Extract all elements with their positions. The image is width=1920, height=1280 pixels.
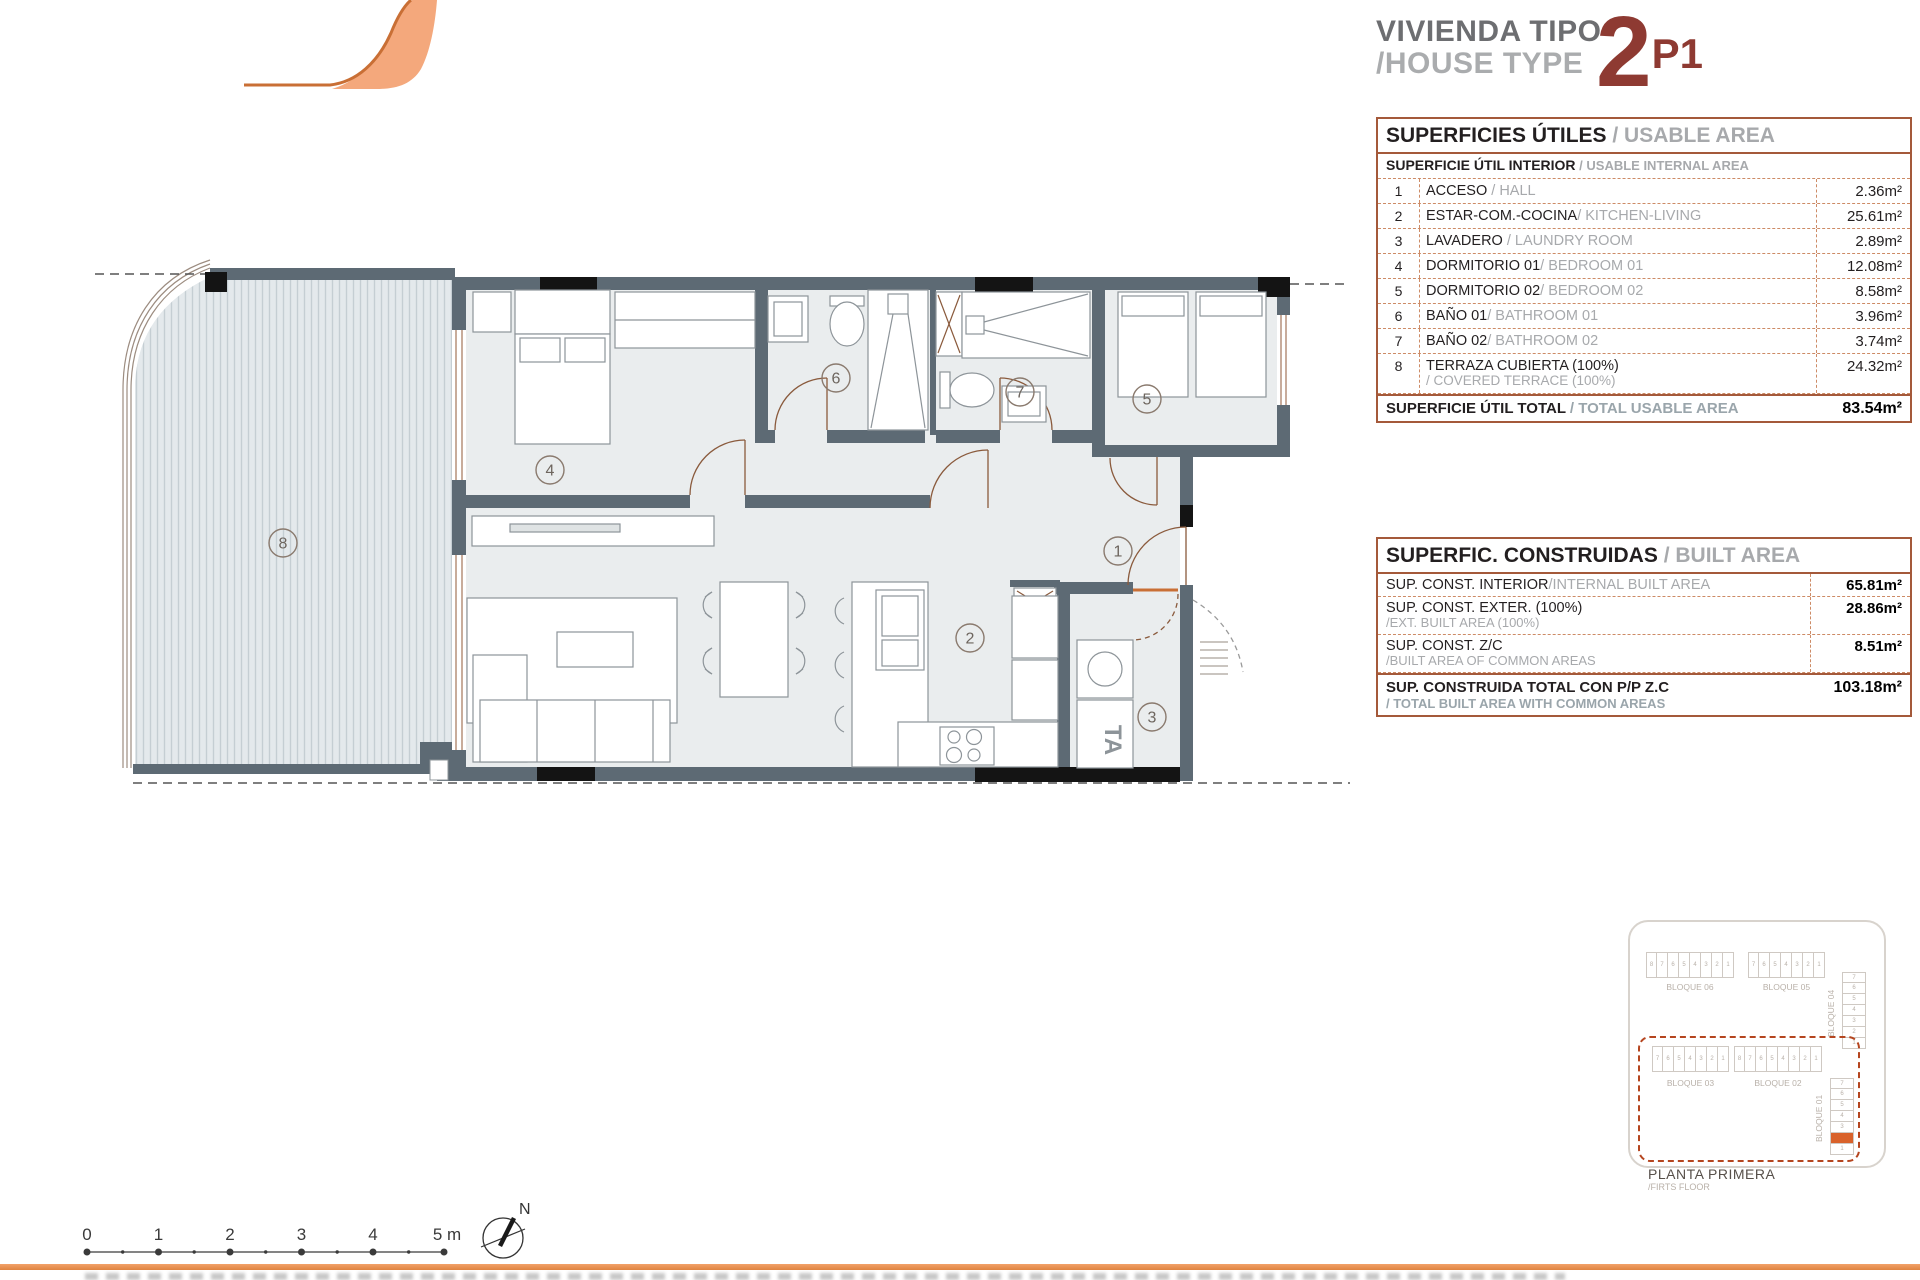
- svg-text:8: 8: [279, 536, 288, 553]
- unit-cell: 5: [1830, 1100, 1854, 1111]
- type-number: 2: [1596, 0, 1652, 108]
- bloque-05-cells: 7654321: [1748, 952, 1825, 978]
- unit-cell: 3: [1830, 1122, 1854, 1133]
- svg-text:5: 5: [1143, 392, 1152, 409]
- unit-cell: 6: [1759, 952, 1770, 978]
- built-area-table: SUPERFIC. CONSTRUIDAS / BUILT AREA SUP. …: [1376, 537, 1912, 717]
- unit-cell: 5: [1679, 952, 1690, 978]
- unit-cell: 3: [1792, 952, 1803, 978]
- usable-area-table: SUPERFICIES ÚTILES / USABLE AREA SUPERFI…: [1376, 117, 1912, 423]
- unit-cell: 6: [1842, 983, 1866, 994]
- bloque-01-label: BLOQUE 01: [1814, 1080, 1824, 1157]
- usable-table-title: SUPERFICIES ÚTILES / USABLE AREA: [1378, 119, 1910, 154]
- table-row: 5 DORMITORIO 02/ BEDROOM 02 8.58m²: [1378, 279, 1910, 304]
- unit-cell: 7: [1748, 952, 1759, 978]
- svg-text:0: 0: [82, 1225, 91, 1244]
- unit-cell: 1: [1718, 1046, 1729, 1072]
- unit-cell: 4: [1781, 952, 1792, 978]
- unit-cell: 6: [1756, 1046, 1767, 1072]
- terrace-decking-hatch: [135, 277, 455, 770]
- unit-cell: 5: [1770, 952, 1781, 978]
- bloque-03-label: BLOQUE 03: [1652, 1078, 1729, 1088]
- table-row: SUP. CONST. Z/C/BUILT AREA OF COMMON ARE…: [1378, 635, 1910, 673]
- unit-cell: 7: [1657, 952, 1668, 978]
- table-row: 1 ACCESO / HALL 2.36m²: [1378, 179, 1910, 204]
- usable-total-row: SUPERFICIE ÚTIL TOTAL / TOTAL USABLE ARE…: [1378, 394, 1910, 421]
- unit-cell: 8: [1734, 1046, 1745, 1072]
- bloque-06-label: BLOQUE 06: [1646, 982, 1734, 992]
- table-row: SUP. CONST. INTERIOR/INTERNAL BUILT AREA…: [1378, 574, 1910, 597]
- svg-text:4: 4: [368, 1225, 377, 1244]
- scale-bar: 0 1 2 3 4 5 m: [82, 1225, 461, 1256]
- svg-text:5 m: 5 m: [433, 1225, 461, 1244]
- table-row: 6 BAÑO 01/ BATHROOM 01 3.96m²: [1378, 304, 1910, 329]
- svg-text:7: 7: [1016, 385, 1025, 402]
- brand-logo-icon: [244, 0, 437, 89]
- unit-cell: 6: [1830, 1089, 1854, 1100]
- unit-cell: 3: [1701, 952, 1712, 978]
- table-row: 2 ESTAR-COM.-COCINA/ KITCHEN-LIVING 25.6…: [1378, 204, 1910, 229]
- svg-text:2: 2: [966, 631, 975, 648]
- unit-cell: 4: [1830, 1111, 1854, 1122]
- built-table-title: SUPERFIC. CONSTRUIDAS / BUILT AREA: [1378, 539, 1910, 574]
- built-total-row: SUP. CONSTRUIDA TOTAL CON P/P Z.C/ TOTAL…: [1378, 673, 1910, 715]
- unit-cell: 1: [1814, 952, 1825, 978]
- unit-cell: 4: [1690, 952, 1701, 978]
- unit-cell: 5: [1842, 994, 1866, 1005]
- unit-cell: 2: [1712, 952, 1723, 978]
- unit-cell: 1: [1830, 1144, 1854, 1155]
- svg-text:3: 3: [297, 1225, 306, 1244]
- svg-text:3: 3: [1148, 710, 1157, 727]
- unit-cell: 1: [1811, 1046, 1822, 1072]
- unit-cell: 8: [1646, 952, 1657, 978]
- unit-cell: 2: [1707, 1046, 1718, 1072]
- svg-text:6: 6: [832, 371, 841, 388]
- floor-label-es: PLANTA PRIMERA: [1648, 1166, 1775, 1182]
- unit-cell: 4: [1842, 1005, 1866, 1016]
- table-row: SUP. CONST. EXTER. (100%)/EXT. BUILT ARE…: [1378, 597, 1910, 635]
- bloque-06-cells: 87654321: [1646, 952, 1734, 978]
- unit-cell: 2: [1830, 1133, 1854, 1144]
- table-row: 3 LAVADERO / LAUNDRY ROOM 2.89m²: [1378, 229, 1910, 254]
- table-row: 4 DORMITORIO 01/ BEDROOM 01 12.08m²: [1378, 254, 1910, 279]
- unit-cell: 3: [1842, 1016, 1866, 1027]
- unit-cell: 7: [1745, 1046, 1756, 1072]
- unit-cell: 2: [1800, 1046, 1811, 1072]
- svg-text:1: 1: [154, 1225, 163, 1244]
- unit-cell: 5: [1767, 1046, 1778, 1072]
- unit-cell: 7: [1652, 1046, 1663, 1072]
- type-variant: P1: [1652, 30, 1703, 77]
- footer-accent-rule: [0, 1264, 1920, 1270]
- north-label: N: [519, 1201, 531, 1218]
- page: TA 1 2 3 4 5 6 7 8 0: [0, 0, 1920, 1280]
- table-row: 8 TERRAZA CUBIERTA (100%)/ COVERED TERRA…: [1378, 354, 1910, 394]
- north-arrow-icon: N: [481, 1201, 531, 1258]
- unit-cell: 7: [1830, 1078, 1854, 1089]
- unit-cell: 6: [1668, 952, 1679, 978]
- svg-text:1: 1: [1114, 544, 1123, 561]
- unit-cell: 2: [1803, 952, 1814, 978]
- svg-text:4: 4: [546, 463, 555, 480]
- bloque-02-label: BLOQUE 02: [1734, 1078, 1822, 1088]
- unit-cell: 7: [1842, 972, 1866, 983]
- laundry-ta-label: TA: [1099, 725, 1126, 755]
- unit-cell: 4: [1685, 1046, 1696, 1072]
- floor-label-en: /FIRTS FLOOR: [1648, 1182, 1775, 1192]
- house-type-number: 2P1: [1596, 2, 1836, 102]
- bloque-02-cells: 87654321: [1734, 1046, 1822, 1072]
- unit-cell: 6: [1663, 1046, 1674, 1072]
- bloque-03-cells: 7654321: [1652, 1046, 1729, 1072]
- table-row: 7 BAÑO 02/ BATHROOM 02 3.74m²: [1378, 329, 1910, 354]
- footer-fine-print: [85, 1273, 1565, 1280]
- unit-cell: 3: [1789, 1046, 1800, 1072]
- stairs-common-area: [1200, 642, 1228, 674]
- unit-cell: 3: [1696, 1046, 1707, 1072]
- floor-label: PLANTA PRIMERA /FIRTS FLOOR: [1648, 1166, 1775, 1192]
- unit-cell: 1: [1723, 952, 1734, 978]
- bloque-05-label: BLOQUE 05: [1748, 982, 1825, 992]
- bloque-01-cells: 7654321: [1830, 1078, 1854, 1155]
- unit-cell: 4: [1778, 1046, 1789, 1072]
- svg-text:2: 2: [225, 1225, 234, 1244]
- unit-cell: 5: [1674, 1046, 1685, 1072]
- usable-table-subtitle: SUPERFICIE ÚTIL INTERIOR / USABLE INTERN…: [1378, 154, 1910, 179]
